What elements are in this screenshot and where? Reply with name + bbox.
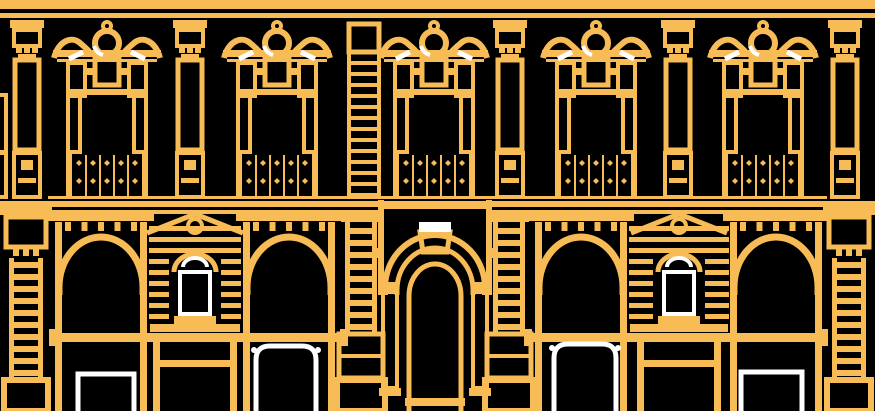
- white-arched-door: [251, 346, 321, 411]
- pediment-window: [223, 22, 331, 152]
- shop-arch-bay: [535, 222, 627, 411]
- pediment-window: [380, 22, 488, 152]
- pediment-window: [542, 22, 650, 152]
- portal-quoin-ladder: [337, 210, 385, 411]
- pilaster: [10, 20, 44, 150]
- pediment-window: [709, 22, 817, 152]
- entrance-portal: [372, 200, 498, 411]
- facade-drawing: [0, 0, 875, 411]
- edge-fragment: [0, 95, 6, 197]
- pilaster: [173, 20, 207, 150]
- pilaster-pedestal: [497, 153, 523, 197]
- corner-pilaster: [823, 205, 875, 411]
- pilaster-pedestal: [14, 153, 40, 197]
- pilaster-pedestal: [177, 153, 203, 197]
- pilaster: [661, 20, 695, 150]
- pilaster: [493, 20, 527, 150]
- facade-illustration: [0, 0, 875, 411]
- white-door-frame: [741, 372, 802, 411]
- pilaster-pedestal: [832, 153, 858, 197]
- corner-pilaster: [0, 205, 52, 411]
- quoin-ladder-upper: [349, 24, 379, 195]
- pediment-window: [53, 22, 161, 152]
- pilaster: [828, 20, 862, 150]
- balcony-railing: [555, 153, 637, 197]
- white-door-frame: [78, 374, 134, 411]
- balcony-railing: [722, 153, 804, 197]
- balcony-railing: [236, 153, 318, 197]
- portal-quoin-ladder: [485, 210, 533, 411]
- pilaster-pedestal: [665, 153, 691, 197]
- shop-arch-bay: [730, 222, 822, 411]
- white-arched-door: [549, 344, 621, 411]
- niche-wall: [147, 210, 243, 411]
- niche-wall: [629, 210, 729, 411]
- balcony-railing: [393, 153, 475, 197]
- top-cornice: [0, 0, 875, 18]
- balcony-railing: [66, 153, 148, 197]
